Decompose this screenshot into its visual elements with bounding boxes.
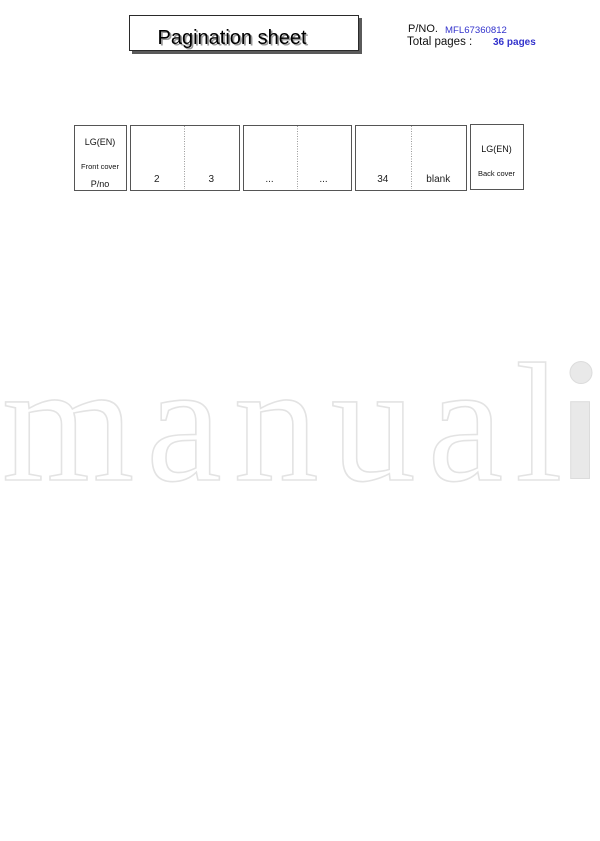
svg-text:manual: manual <box>2 330 574 500</box>
